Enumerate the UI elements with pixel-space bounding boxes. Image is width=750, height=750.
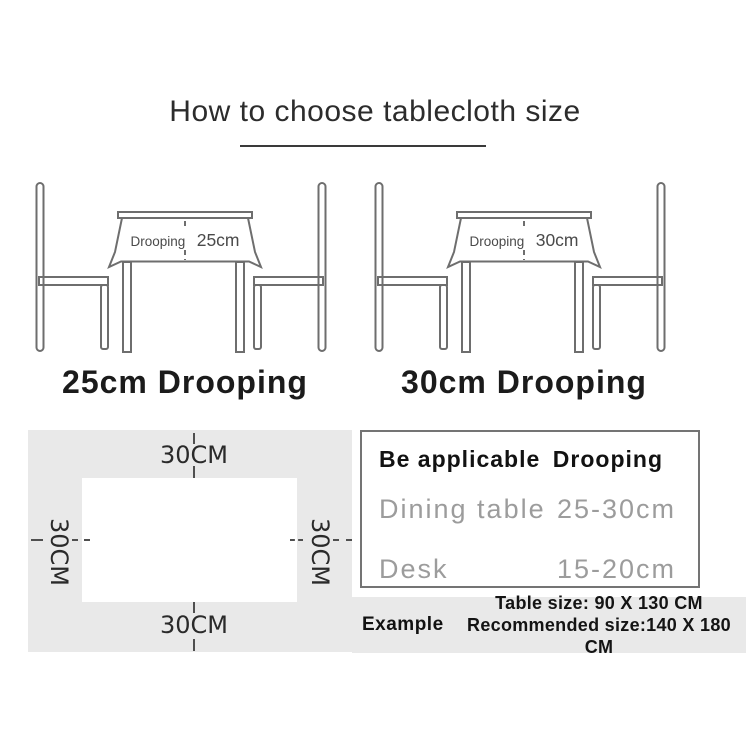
overhang-label-top: 30CM	[144, 443, 244, 467]
dash-line	[333, 539, 352, 541]
table-chairs-diagram-25cm: Drooping 25cm	[25, 180, 345, 355]
chair-back-icon	[319, 183, 326, 351]
table-top-icon	[457, 212, 591, 218]
spec-cell-desk: Desk	[379, 554, 449, 585]
dash-line	[72, 539, 90, 541]
caption-25cm-drooping: 25cm Drooping	[25, 362, 345, 402]
dash-line	[31, 539, 43, 541]
example-lines: Table size: 90 X 130 CM Recommended size…	[458, 592, 746, 658]
infographic: How to choose tablecloth size Drooping 2…	[0, 0, 750, 750]
chair-back-icon	[37, 183, 44, 351]
spec-cell-dining-drooping: 25-30cm	[557, 494, 676, 525]
chair-back-icon	[658, 183, 665, 351]
overhang-label-bottom: 30CM	[144, 613, 244, 637]
chair-seat-icon	[39, 277, 108, 285]
table-top-rect	[82, 478, 297, 602]
table-chairs-diagram-30cm: Drooping 30cm	[364, 180, 684, 355]
spec-cell-dining-table: Dining table	[379, 494, 546, 525]
chair-leg-icon	[101, 285, 108, 349]
table-leg-icon	[462, 262, 470, 352]
table-leg-icon	[123, 262, 131, 352]
spec-table-header: Be applicable Drooping	[379, 446, 663, 473]
spec-header-drooping: Drooping	[553, 446, 663, 473]
spec-cell-desk-drooping: 15-20cm	[557, 554, 676, 585]
overhang-label-left: 30CM	[45, 518, 73, 562]
dash-line	[193, 639, 195, 651]
overhang-label-right: 30CM	[306, 518, 334, 562]
drooping-spec-table: Be applicable Drooping Dining table 25-3…	[360, 430, 700, 588]
table-top-icon	[118, 212, 252, 218]
chair-seat-icon	[593, 277, 662, 285]
table-row: Dining table 25-30cm	[379, 494, 676, 525]
spec-header-applicable: Be applicable	[379, 446, 540, 473]
furniture-outline	[37, 183, 326, 352]
example-strip: Example Table size: 90 X 130 CM Recommen…	[352, 597, 746, 653]
overhang-size-panel: 30CM 30CM 30CM 30CM	[28, 430, 352, 652]
page-title: How to choose tablecloth size	[0, 94, 750, 130]
chair-seat-icon	[378, 277, 447, 285]
chair-leg-icon	[593, 285, 600, 349]
example-table-size: Table size: 90 X 130 CM	[458, 592, 740, 614]
furniture-outline	[376, 183, 665, 352]
chair-seat-icon	[254, 277, 323, 285]
example-recommended-size: Recommended size:140 X 180 CM	[458, 614, 740, 658]
table-leg-icon	[575, 262, 583, 352]
dash-line	[290, 539, 303, 541]
chair-leg-icon	[254, 285, 261, 349]
title-underline	[240, 145, 486, 147]
caption-30cm-drooping: 30cm Drooping	[364, 362, 684, 402]
table-row: Desk 15-20cm	[379, 554, 676, 585]
chair-leg-icon	[440, 285, 447, 349]
example-label: Example	[352, 614, 458, 636]
table-leg-icon	[236, 262, 244, 352]
chair-back-icon	[376, 183, 383, 351]
